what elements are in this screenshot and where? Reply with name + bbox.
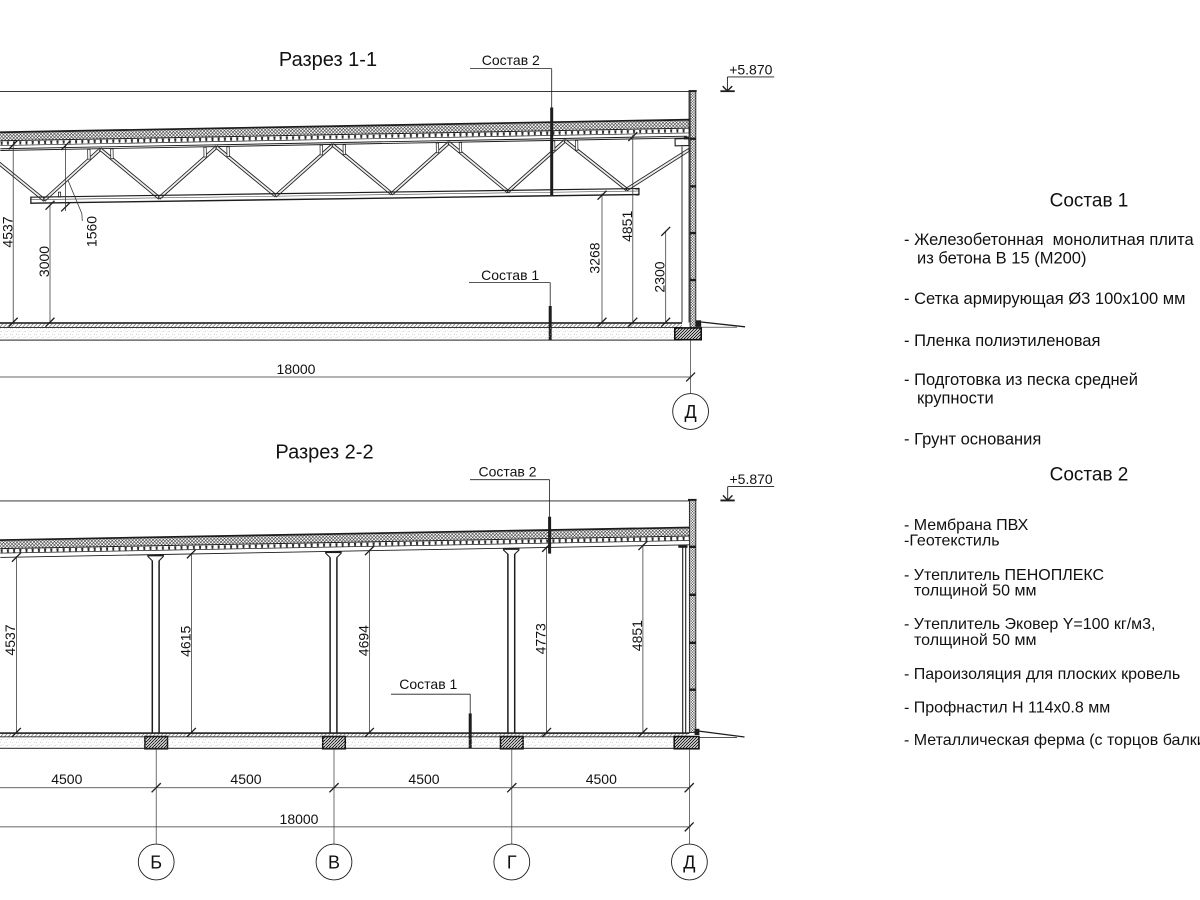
svg-text:Разрез 1-1: Разрез 1-1 [279,49,377,71]
svg-text:- Сетка армирующая Ø3 100х100: - Сетка армирующая Ø3 100х100 мм [904,290,1186,308]
svg-text:Состав 1: Состав 1 [481,267,539,283]
svg-text:- Железобетонная монолитная п: - Железобетонная монолитная плита [904,231,1194,249]
svg-text:Состав 2: Состав 2 [478,463,536,479]
svg-text:4500: 4500 [51,771,82,787]
svg-text:3000: 3000 [36,246,52,277]
svg-text:3268: 3268 [587,242,603,273]
svg-text:- Утеплитель ПЕНОПЛЕКС: - Утеплитель ПЕНОПЛЕКС [904,567,1104,584]
svg-text:- Мембрана ПВХ: - Мембрана ПВХ [904,517,1029,534]
svg-text:4851: 4851 [629,620,645,651]
svg-text:В: В [328,852,340,872]
svg-text:1560: 1560 [84,216,100,247]
svg-text:Состав 2: Состав 2 [1050,465,1129,486]
svg-text:4851: 4851 [619,211,635,242]
svg-text:+5.870: +5.870 [729,61,772,77]
svg-text:4615: 4615 [177,626,193,657]
svg-text:Состав 1: Состав 1 [399,676,457,692]
svg-text:4500: 4500 [230,771,261,787]
svg-text:-Геотекстиль: -Геотекстиль [904,533,1000,550]
svg-text:Разрез 2-2: Разрез 2-2 [275,441,373,463]
svg-text:2300: 2300 [651,261,667,292]
svg-text:+5.870: +5.870 [729,471,772,487]
svg-text:- Подготовка из песка средней: - Подготовка из песка средней [904,371,1138,389]
svg-text:4500: 4500 [586,771,617,787]
svg-text:Г: Г [507,852,517,872]
svg-text:Б: Б [150,852,162,872]
svg-text:- Металлическая ферма (с торцо: - Металлическая ферма (с торцов балки) [904,732,1200,749]
svg-text:18000: 18000 [277,361,316,377]
svg-text:Состав 2: Состав 2 [482,52,540,68]
svg-text:толщиной 50 мм: толщиной 50 мм [914,632,1037,649]
svg-text:4537: 4537 [0,216,15,247]
svg-text:- Пленка полиэтиленовая: - Пленка полиэтиленовая [904,332,1100,350]
svg-text:из бетона В 15 (М200): из бетона В 15 (М200) [917,250,1086,268]
svg-text:Д: Д [684,402,696,422]
svg-text:- Грунт основания: - Грунт основания [904,430,1041,448]
svg-text:- Утеплитель Эковер Y=100 кг/м: - Утеплитель Эковер Y=100 кг/м3, [904,616,1155,633]
svg-text:4694: 4694 [355,625,371,656]
svg-text:Состав 1: Состав 1 [1050,190,1129,211]
svg-text:4537: 4537 [2,624,18,655]
svg-text:- Пароизоляция для плоских кро: - Пароизоляция для плоских кровель [904,666,1180,683]
svg-text:4500: 4500 [408,771,439,787]
svg-text:крупности: крупности [917,389,994,407]
svg-text:- Профнастил Н 114х0.8 мм: - Профнастил Н 114х0.8 мм [904,699,1110,716]
svg-text:толщиной 50 мм: толщиной 50 мм [914,583,1037,600]
svg-text:Д: Д [683,852,695,872]
svg-text:4773: 4773 [533,623,549,654]
svg-text:18000: 18000 [280,811,319,827]
